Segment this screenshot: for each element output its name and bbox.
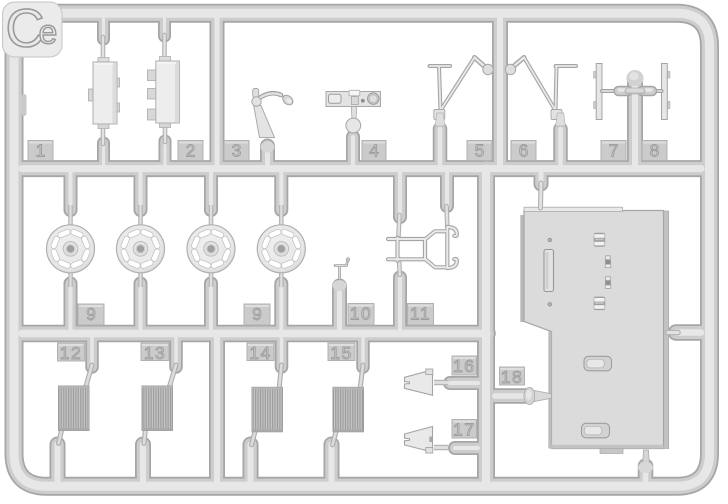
svg-text:9: 9 xyxy=(86,304,96,324)
svg-text:3: 3 xyxy=(232,140,242,160)
svg-text:11: 11 xyxy=(410,303,431,323)
svg-text:1: 1 xyxy=(36,140,46,160)
svg-text:8: 8 xyxy=(650,140,660,160)
svg-text:7: 7 xyxy=(609,140,619,160)
svg-text:15: 15 xyxy=(330,343,352,363)
svg-text:14: 14 xyxy=(249,343,271,363)
svg-text:18: 18 xyxy=(501,367,523,387)
svg-text:e: e xyxy=(39,14,58,52)
svg-text:5: 5 xyxy=(475,140,485,160)
svg-text:17: 17 xyxy=(453,419,475,439)
svg-text:13: 13 xyxy=(144,343,166,363)
svg-text:4: 4 xyxy=(369,140,379,160)
svg-text:6: 6 xyxy=(519,140,529,160)
svg-text:2: 2 xyxy=(186,140,196,160)
svg-text:10: 10 xyxy=(350,303,372,323)
svg-text:16: 16 xyxy=(453,356,475,376)
svg-text:12: 12 xyxy=(60,343,82,363)
svg-text:9: 9 xyxy=(252,304,262,324)
